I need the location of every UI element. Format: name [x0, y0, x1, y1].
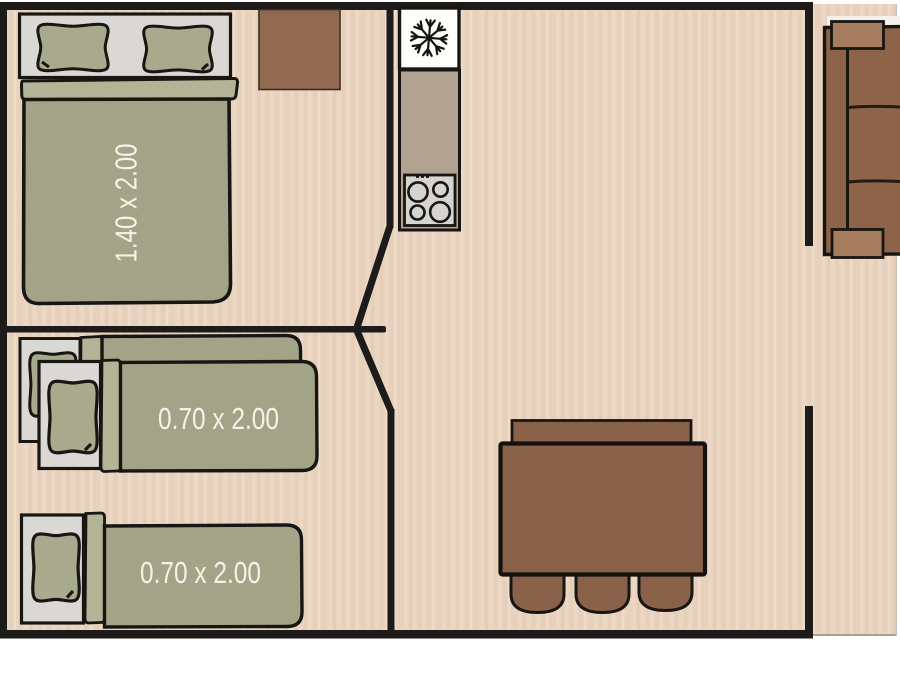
svg-text:0.70 x 2.00: 0.70 x 2.00: [158, 401, 279, 436]
svg-text:1.40 x 2.00: 1.40 x 2.00: [109, 144, 144, 263]
svg-text:0.70 x 2.00: 0.70 x 2.00: [140, 555, 261, 590]
